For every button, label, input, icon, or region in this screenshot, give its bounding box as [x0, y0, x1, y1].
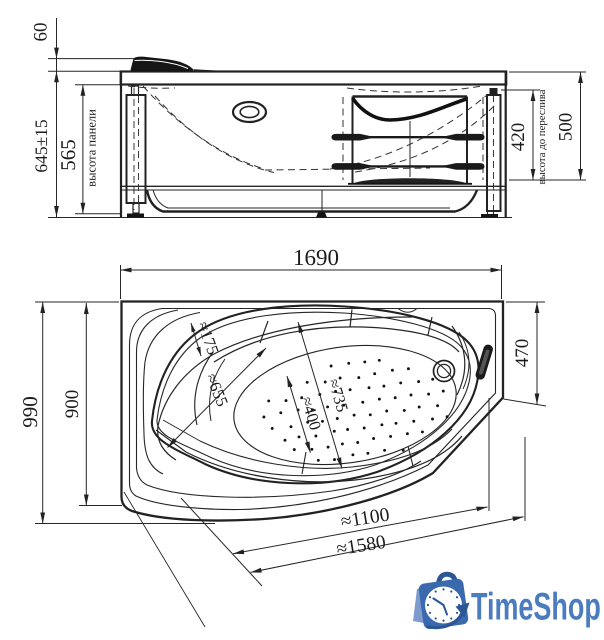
svg-text:TimeShop: TimeShop [471, 586, 601, 629]
svg-text:500: 500 [556, 113, 577, 142]
svg-text:565: 565 [56, 139, 80, 171]
svg-text:60: 60 [31, 23, 52, 42]
svg-text:470: 470 [512, 339, 533, 368]
svg-text:645±15: 645±15 [32, 119, 51, 172]
svg-text:высота до переслива: высота до переслива [536, 89, 548, 184]
svg-text:990: 990 [18, 396, 42, 428]
svg-text:420: 420 [508, 123, 529, 152]
svg-text:высота панели: высота панели [85, 109, 99, 187]
svg-text:1690: 1690 [293, 245, 339, 270]
svg-text:900: 900 [62, 390, 83, 419]
